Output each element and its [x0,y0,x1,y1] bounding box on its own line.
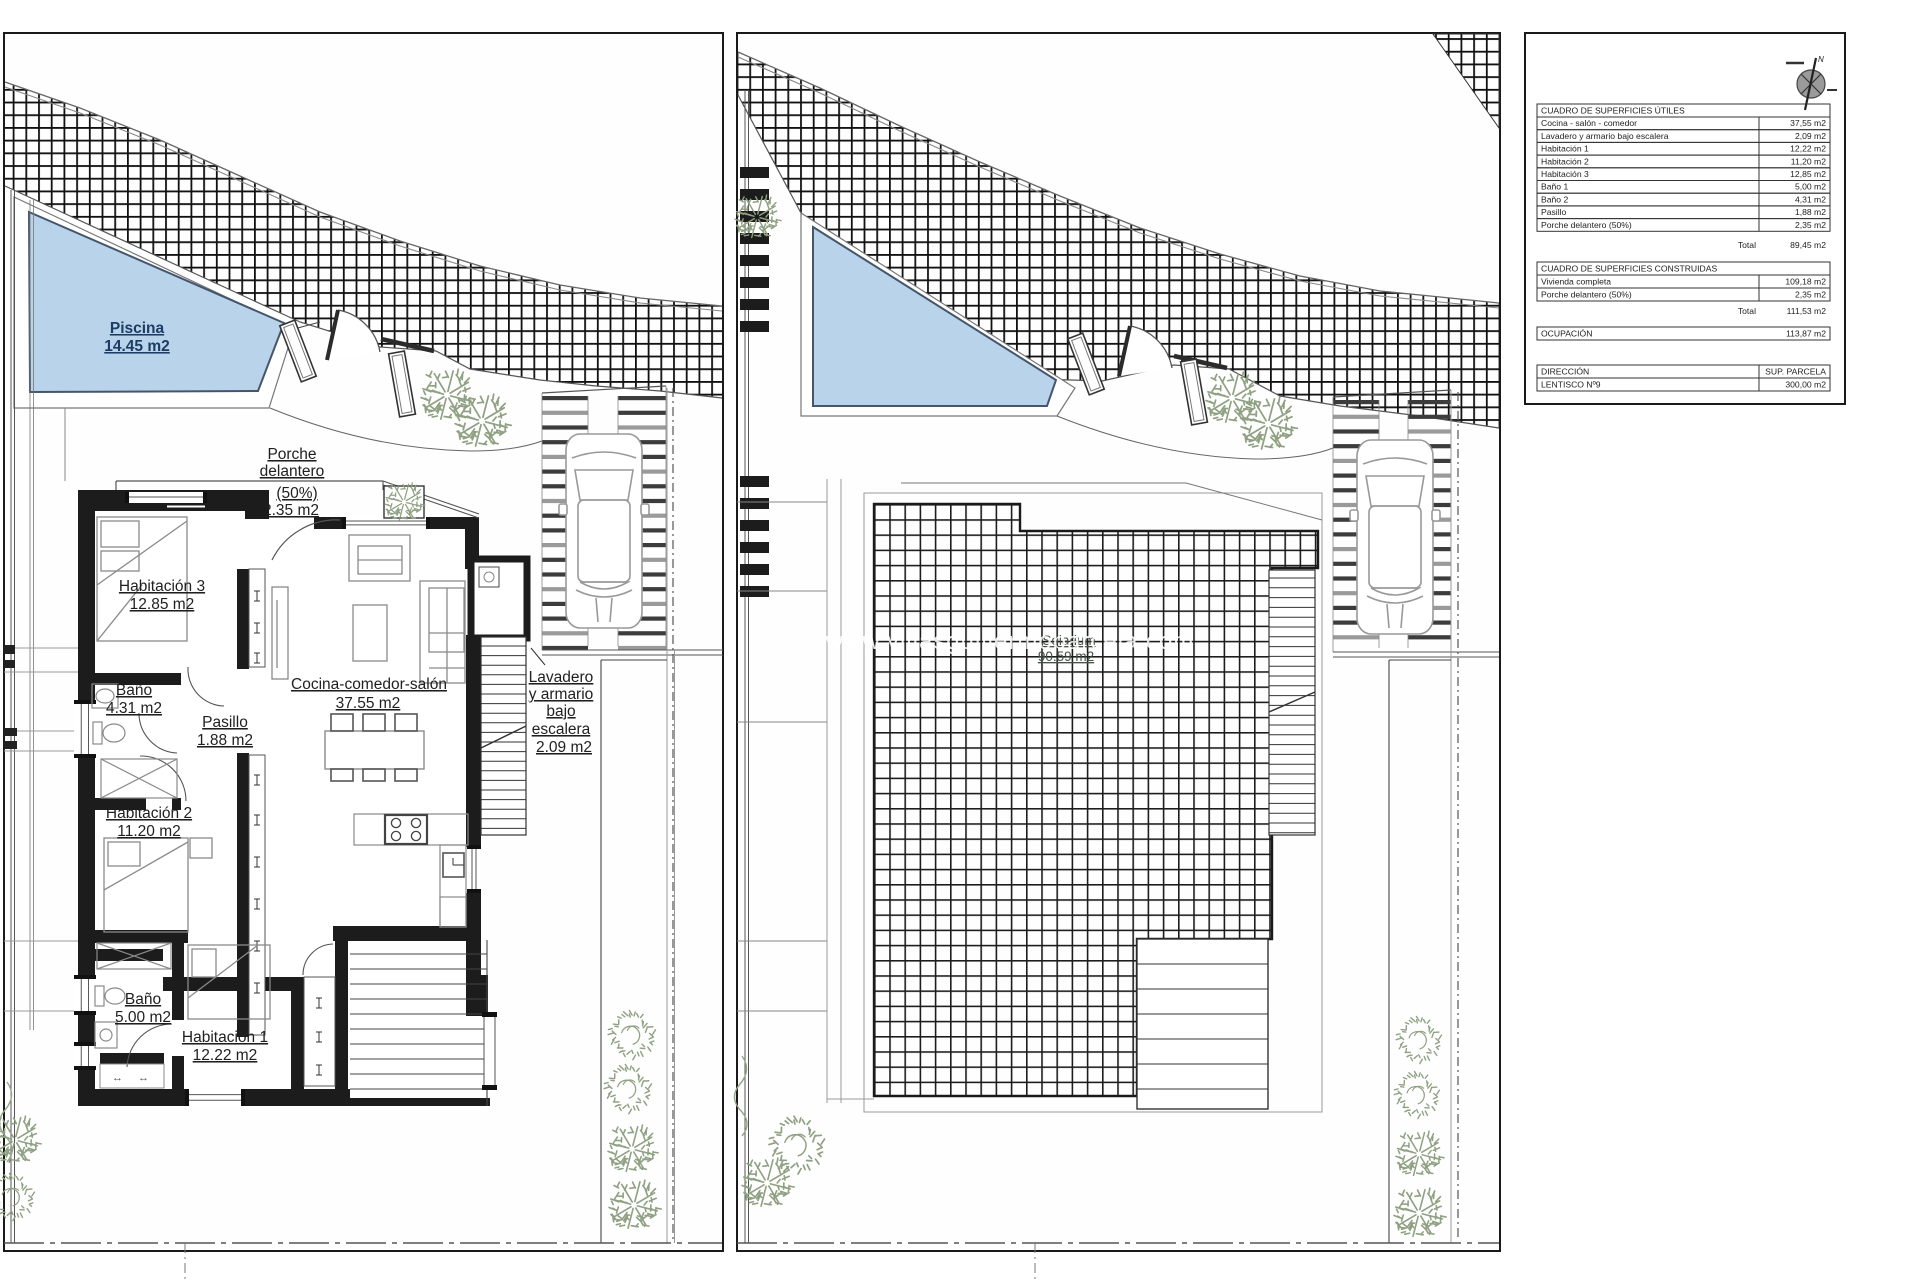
svg-text:Porche delantero (50%): Porche delantero (50%) [1541,290,1632,300]
svg-text:Vivienda completa: Vivienda completa [1541,277,1611,287]
svg-text:N: N [1818,55,1824,64]
svg-text:OCUPACIÓN: OCUPACIÓN [1541,329,1592,339]
svg-text:12,22 m2: 12,22 m2 [1790,144,1826,154]
svg-text:SUP. PARCELA: SUP. PARCELA [1765,367,1826,377]
svg-text:(50%): (50%) [276,485,317,502]
svg-text:11,20 m2: 11,20 m2 [1791,156,1826,166]
svg-text:5,00 m2: 5,00 m2 [1795,182,1826,192]
svg-text:Pasillo: Pasillo [1541,207,1567,217]
svg-text:12.22 m2: 12.22 m2 [193,1047,258,1064]
svg-text:↔: ↔ [112,1072,123,1084]
svg-text:4.31 m2: 4.31 m2 [106,700,162,717]
svg-text:Lavadero: Lavadero [529,669,594,686]
svg-text:12.85 m2: 12.85 m2 [130,596,195,613]
svg-text:Habitación 1: Habitación 1 [1541,144,1589,154]
svg-text:Cocina - salón - comedor: Cocina - salón - comedor [1541,118,1637,128]
svg-text:Lavadero y armario bajo escale: Lavadero y armario bajo escalera [1541,131,1669,141]
svg-text:Baño 2: Baño 2 [1541,194,1568,204]
svg-text:14.45 m2: 14.45 m2 [104,338,170,355]
svg-text:↔: ↔ [138,1072,149,1084]
svg-text:DIRECCIÓN: DIRECCIÓN [1541,367,1589,377]
svg-text:2,09 m2: 2,09 m2 [1795,131,1826,141]
svg-text:300,00 m2: 300,00 m2 [1785,380,1826,390]
svg-text:CUADRO DE SUPERFICIES ÚTILES: CUADRO DE SUPERFICIES ÚTILES [1541,106,1685,116]
svg-text:Habitación 1: Habitación 1 [182,1029,268,1046]
svg-text:Total: Total [1738,306,1756,316]
svg-text:2.35 m2: 2.35 m2 [263,502,319,519]
svg-text:89,45 m2: 89,45 m2 [1790,240,1826,250]
svg-text:bajo: bajo [546,703,575,720]
svg-text:Porche delantero (50%): Porche delantero (50%) [1541,220,1632,230]
svg-text:Baño: Baño [116,682,152,699]
svg-text:1.88 m2: 1.88 m2 [197,732,253,749]
svg-text:113,87 m2: 113,87 m2 [1786,329,1826,339]
svg-text:Habitación 2: Habitación 2 [1541,156,1589,166]
svg-text:Baño 1: Baño 1 [1541,182,1568,192]
svg-text:www.villasguillermoparcela.com: www.villasguillermoparcela.com [825,628,1195,655]
svg-text:Piscina: Piscina [110,320,165,337]
svg-text:2.09 m2: 2.09 m2 [536,739,592,756]
svg-text:Pasillo: Pasillo [202,714,248,731]
svg-text:Porche: Porche [267,446,316,463]
svg-text:Habitación 2: Habitación 2 [106,805,192,822]
svg-text:Total: Total [1738,240,1756,250]
svg-text:CUADRO DE SUPERFICIES CONSTRUI: CUADRO DE SUPERFICIES CONSTRUIDAS [1541,264,1717,274]
svg-text:Habitación 3: Habitación 3 [1541,169,1589,179]
svg-text:LENTISCO Nº9: LENTISCO Nº9 [1541,380,1601,390]
svg-text:11.20 m2: 11.20 m2 [117,823,180,840]
svg-text:escalera: escalera [532,721,591,738]
svg-text:4,31 m2: 4,31 m2 [1795,194,1826,204]
svg-text:37,55 m2: 37,55 m2 [1790,118,1826,128]
svg-text:2,35 m2: 2,35 m2 [1795,220,1826,230]
svg-text:y armario: y armario [529,686,594,703]
svg-text:Cocina-comedor-salón: Cocina-comedor-salón [291,676,447,693]
svg-text:Baño: Baño [125,991,161,1008]
svg-text:delantero: delantero [260,463,325,480]
svg-text:Habitación 3: Habitación 3 [119,578,205,595]
svg-text:2,35 m2: 2,35 m2 [1795,290,1826,300]
svg-text:109,18 m2: 109,18 m2 [1785,277,1826,287]
svg-text:111,53 m2: 111,53 m2 [1787,306,1827,316]
svg-text:1,88 m2: 1,88 m2 [1795,207,1826,217]
svg-text:37.55 m2: 37.55 m2 [336,695,401,712]
svg-text:12,85 m2: 12,85 m2 [1790,169,1826,179]
svg-text:5.00 m2: 5.00 m2 [115,1009,171,1026]
